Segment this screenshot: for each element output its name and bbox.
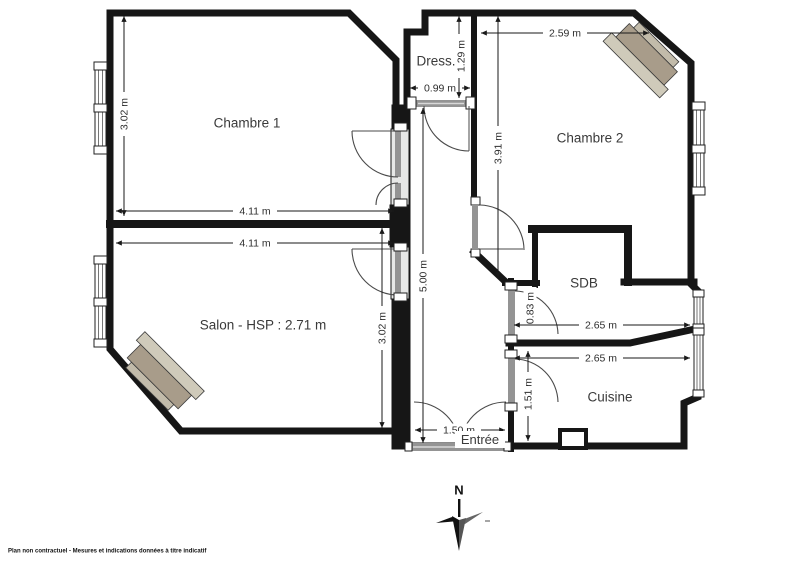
jamb-chambre1-bottom [394,199,407,207]
chambre2-door-leaf-band [472,205,478,249]
cuisine-door-band [508,357,515,404]
dim-sdb-width: 2.65 m [514,319,690,332]
room-label-chambre1: Chambre 1 [214,116,281,131]
dim-dress-width: 0.99 m [410,82,470,95]
window-salon-post-top [94,256,107,264]
window-cuisine-band [694,332,703,396]
jamb-chambre2-bottom [471,249,480,257]
salon-door-leaf-band [395,249,401,295]
window-cuisine-post-bottom [693,390,704,397]
window-chambre1-post-top [94,62,107,70]
footer-disclaimer: Plan non contractuel - Mesures et indica… [8,549,207,555]
dim-cuisine-depth: 1.51 m [522,351,535,441]
compass-north-spike [458,499,460,517]
window-salon-post-bottom [94,339,107,347]
jamb-sdb-top [505,282,517,290]
dim-chambre1-height: 3.02 m [118,16,131,216]
dim-value-chambre2-height: 3.91 m [492,132,504,164]
window-cuisine-post-top [693,328,704,335]
window-salon [94,256,107,347]
jamb-sdb-bottom [505,335,517,343]
window-chambre2 [692,102,705,195]
dim-hall-length: 5.00 m [417,108,430,443]
dim-value-salon-width: 4.11 m [239,237,271,249]
room-label-cuisine: Cuisine [587,390,632,405]
sdb-door-band [508,289,515,336]
room-label-sdb: SDB [570,276,598,291]
dim-value-dress-height: 1.29 m [455,40,467,72]
jamb-dress-left [407,97,416,109]
jamb-entry-left [405,442,412,451]
dim-chambre1-width: 4.11 m [116,204,394,217]
jamb-chambre2-top [471,197,480,205]
dim-value-hall-length: 5.00 m [417,260,429,292]
compass-north-label: N [454,482,463,497]
interior-walls [110,13,695,449]
window-sdb-band [694,294,703,328]
jamb-salon-bottom [394,293,407,301]
room-label-chambre2: Chambre 2 [557,131,624,146]
room-label-entree-group: Entrée [455,431,505,448]
window-sdb-post-top [693,290,704,297]
window-sdb [693,290,704,331]
dim-sdb-door: 0.83 m [524,287,537,329]
dim-salon-height: 3.02 m [376,228,389,428]
floor-plan-page: 4.11 m 3.02 m 4.11 m 3.02 m 5.00 [0,0,800,564]
room-label-dressing: Dress. [416,54,455,69]
room-labels: Chambre 1 Chambre 2 Dress. Salon - HSP :… [200,54,633,448]
jamb-entry-right [504,442,511,451]
kitchen-duct-notch [560,430,586,448]
window-chambre2-post-top [692,102,705,110]
jamb-dress-right [466,97,475,109]
dim-chambre2-height: 3.91 m [492,16,505,278]
window-chambre1-post-mid [94,104,107,112]
dim-value-chambre1-height: 3.02 m [118,98,130,130]
room-label-salon: Salon - HSP : 2.71 m [200,318,327,333]
dim-value-sdb-door: 0.83 m [524,292,536,324]
dim-value-dress-width: 0.99 m [424,82,456,94]
dim-value-chambre2-width: 2.59 m [549,27,581,39]
dim-value-sdb-width: 2.65 m [585,319,617,331]
floor-plan-drawing: 4.11 m 3.02 m 4.11 m 3.02 m 5.00 [0,0,800,564]
jamb-cuisine-bottom [505,403,517,411]
window-salon-post-mid [94,298,107,306]
dim-value-salon-height: 3.02 m [376,312,388,344]
window-cuisine [693,328,704,397]
hall-top-door-swing-arc [424,106,469,151]
window-chambre2-post-bottom [692,187,705,195]
dim-value-cuisine-depth: 1.51 m [522,378,534,410]
dim-salon-width: 4.11 m [116,236,394,249]
chambre2-door-swing-arc [480,205,524,250]
window-chambre1 [94,62,107,154]
jamb-salon-top [394,243,407,251]
dim-value-cuisine-width: 2.65 m [585,352,617,364]
chambre1-door-leaf-band [395,131,401,177]
dim-value-chambre1-width: 4.11 m [239,205,271,217]
dim-cuisine-width: 2.65 m [514,352,690,365]
jamb-cuisine-top [505,350,517,358]
window-chambre1-post-bottom [94,146,107,154]
jamb-chambre1-top [394,123,407,131]
compass-rose-icon: N [436,482,490,551]
room-label-entree: Entrée [461,432,499,447]
window-chambre2-post-mid [692,145,705,153]
